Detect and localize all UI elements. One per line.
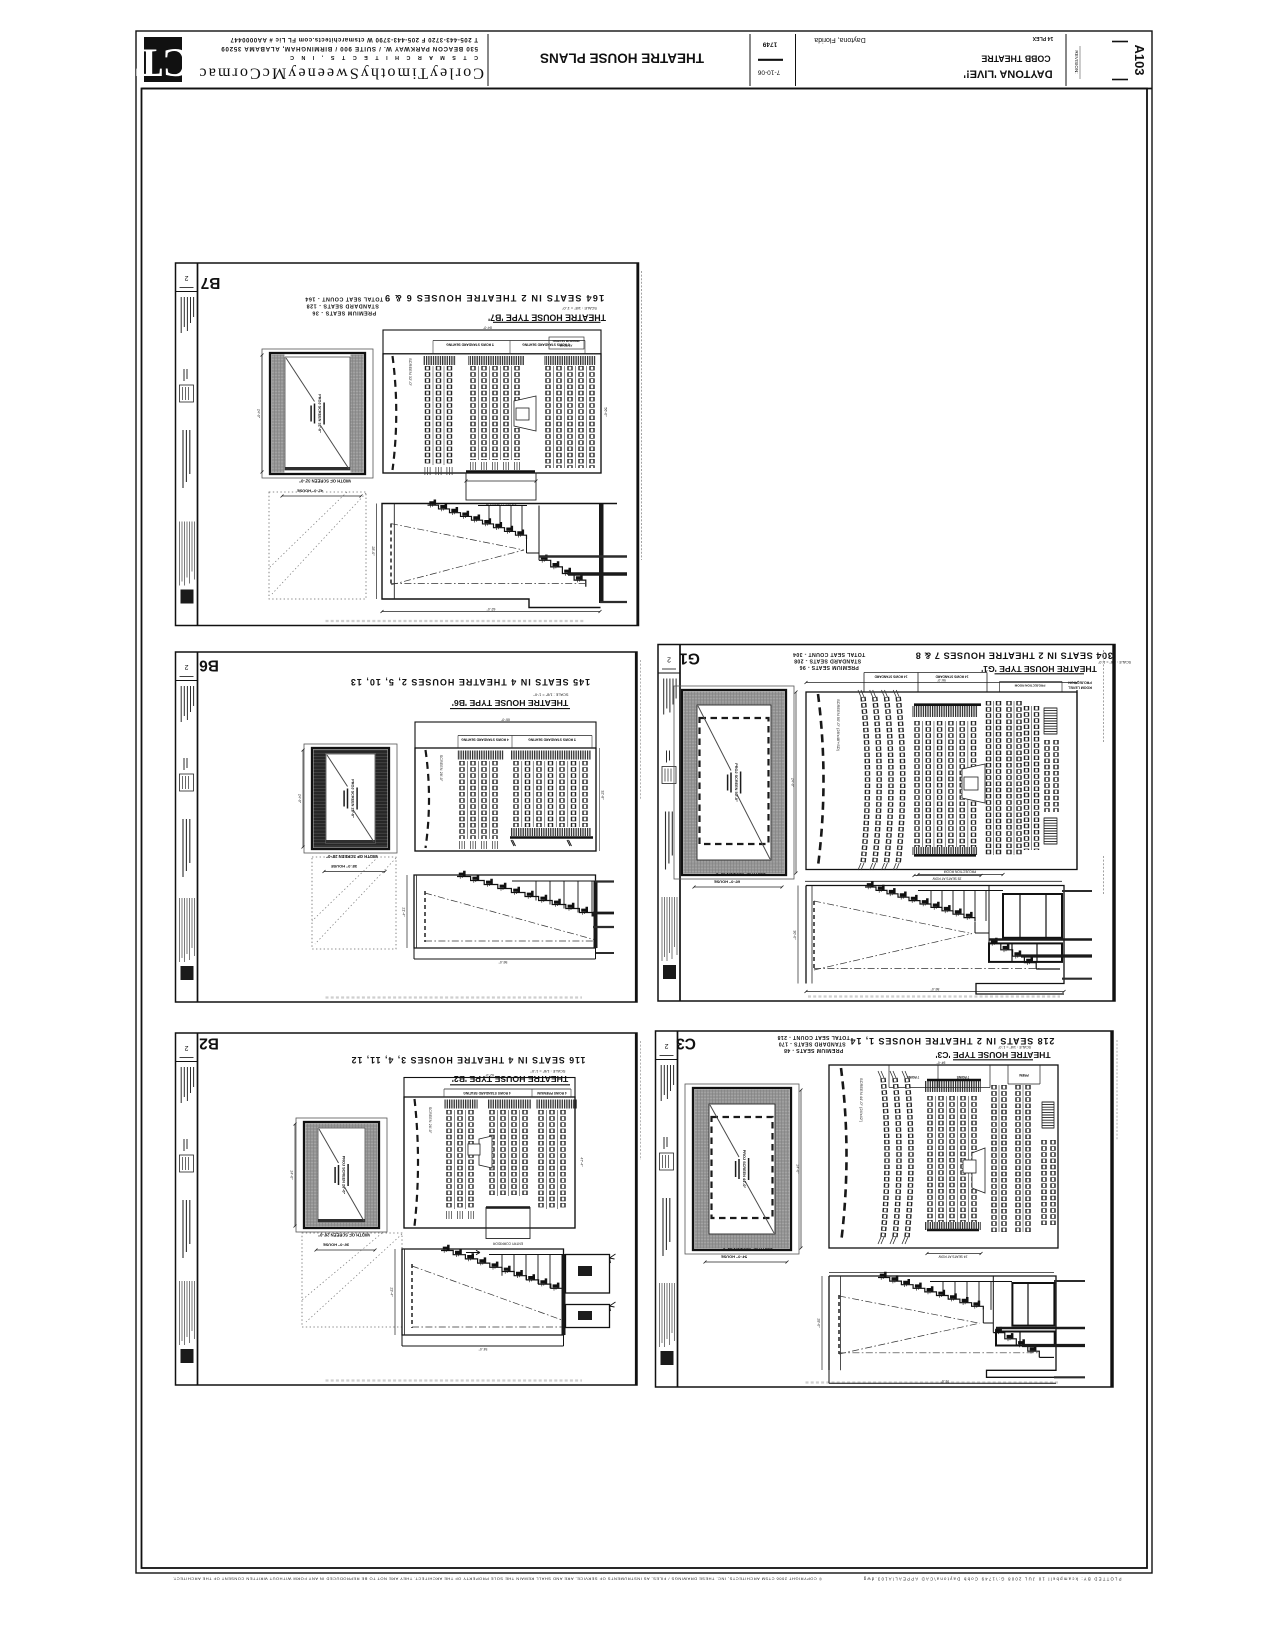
svg-text:28 SEATS AT ROW: 28 SEATS AT ROW <box>932 877 962 881</box>
svg-text:PROJ SCREEN 32'-0": PROJ SCREEN 32'-0" <box>318 394 322 433</box>
svg-text:THEATRE HOUSE TYPE 'B6': THEATRE HOUSE TYPE 'B6' <box>452 698 568 708</box>
svg-text:SCREEN 32'-0": SCREEN 32'-0" <box>408 358 413 387</box>
svg-text:STANDARD SEATS - 128: STANDARD SEATS - 128 <box>306 303 379 309</box>
svg-text:4 ROWS STANDARD SEATING: 4 ROWS STANDARD SEATING <box>461 738 509 742</box>
svg-text:4 ROWS PREMIUM: 4 ROWS PREMIUM <box>537 1091 567 1095</box>
svg-text:A103: A103 <box>1132 44 1147 75</box>
svg-text:38'-0" HOUSE: 38'-0" HOUSE <box>331 864 358 869</box>
svg-text:Daytona, Florida: Daytona, Florida <box>814 36 865 43</box>
svg-text:218 SEATS IN 2 THEATRE HOUSES: 218 SEATS IN 2 THEATRE HOUSES 1, 14 <box>850 1036 1055 1046</box>
svg-text:21'-4": 21'-4" <box>402 907 406 917</box>
svg-text:PREMIUM SEATS - 48: PREMIUM SEATS - 48 <box>784 1047 844 1053</box>
svg-text:THEATRE HOUSE PLANS: THEATRE HOUSE PLANS <box>540 50 704 65</box>
svg-text:PROJECTION ROOM: PROJECTION ROOM <box>944 870 977 874</box>
svg-text:5 ROWS STANDARD SEATING: 5 ROWS STANDARD SEATING <box>446 343 494 347</box>
svg-text:PLOTTED BY: kcampbell 1: PLOTTED BY: kcampbell 10 JUL 2008 G:\174… <box>863 1576 1122 1581</box>
svg-text:THEATRE HOUSE TYPE 'G1': THEATRE HOUSE TYPE 'G1' <box>981 664 1097 674</box>
svg-text:PREMIUM SEATS - 36: PREMIUM SEATS - 36 <box>312 310 376 316</box>
svg-text:SCALE : 1/8" = 1'-0": SCALE : 1/8" = 1'-0" <box>997 1045 1031 1049</box>
svg-text:T 205-443-3720 F 205-443-37: T 205-443-3720 F 205-443-3790 W ctsmarch… <box>230 36 478 42</box>
svg-text:84'-0": 84'-0" <box>482 326 491 330</box>
svg-text:2: 2 <box>184 274 188 281</box>
svg-text:SCREEN 44'-0" (24'x42'): SCREEN 44'-0" (24'x42') <box>859 1078 864 1123</box>
svg-text:24'-0": 24'-0" <box>796 1164 800 1174</box>
svg-text:COBB THEATRE: COBB THEATRE <box>981 54 1050 64</box>
svg-text:2: 2 <box>184 663 188 670</box>
svg-text:PROJ SCREEN 44'-0": PROJ SCREEN 44'-0" <box>742 1150 746 1189</box>
svg-text:66'-0": 66'-0" <box>500 718 509 722</box>
svg-text:PREMIUM SEATING: PREMIUM SEATING <box>552 339 580 343</box>
svg-text:THEATRE HOUSE TYPE 'C3': THEATRE HOUSE TYPE 'C3' <box>935 1050 1050 1060</box>
svg-text:THEATRE HOUSE TYPE 'B2': THEATRE HOUSE TYPE 'B2' <box>452 1074 568 1084</box>
svg-text:42'-0" HOUSE: 42'-0" HOUSE <box>297 488 324 493</box>
svg-text:5 ROWS STANDARD SEATING: 5 ROWS STANDARD SEATING <box>528 738 576 742</box>
svg-text:2: 2 <box>184 1044 188 1051</box>
svg-text:60'-0" HOUSE: 60'-0" HOUSE <box>714 879 741 884</box>
svg-text:7 ROWS: 7 ROWS <box>957 1075 970 1079</box>
svg-text:CT: CT <box>135 40 191 85</box>
svg-text:G1: G1 <box>679 649 700 666</box>
svg-text:PREM: PREM <box>1019 1073 1029 1077</box>
svg-text:530 BEACON PARKWAY W. / SUITE: 530 BEACON PARKWAY W. / SUITE 900 / BIRM… <box>221 45 478 52</box>
svg-text:76'-0": 76'-0" <box>940 1379 949 1383</box>
svg-text:54'-0": 54'-0" <box>478 1347 487 1351</box>
svg-text:23'-4": 23'-4" <box>390 1287 394 1297</box>
svg-text:2: 2 <box>664 1042 668 1049</box>
svg-text:28'-0": 28'-0" <box>371 546 375 556</box>
svg-text:7-10-06: 7-10-06 <box>757 68 780 75</box>
svg-text:WIDTH OF SCREEN 50'-0": WIDTH OF SCREEN 50'-0" <box>714 872 766 877</box>
svg-text:62'-0": 62'-0" <box>486 607 495 611</box>
svg-text:AT REAR: AT REAR <box>559 344 573 348</box>
svg-text:56'-0": 56'-0" <box>498 960 507 964</box>
svg-text:24'-0": 24'-0" <box>257 409 261 419</box>
svg-text:14 PLEX: 14 PLEX <box>1032 35 1053 41</box>
svg-text:PROJ SCREEN 26'-0": PROJ SCREEN 26'-0" <box>342 1156 346 1195</box>
svg-text:TOTAL SEAT COUNT - 218: TOTAL SEAT COUNT - 218 <box>777 1034 849 1040</box>
svg-text:WIDTH OF SCREEN 44'-0": WIDTH OF SCREEN 44'-0" <box>721 1247 773 1252</box>
svg-text:SCREEN 26'-0": SCREEN 26'-0" <box>428 1107 432 1134</box>
svg-text:62'-0": 62'-0" <box>484 1073 493 1077</box>
svg-text:24'-0": 24'-0" <box>290 1170 294 1180</box>
svg-text:THEATRE HOUSE TYPE 'B7': THEATRE HOUSE TYPE 'B7' <box>488 313 606 323</box>
svg-text:TOTAL SEAT COUNT - 164: TOTAL SEAT COUNT - 164 <box>305 296 383 302</box>
svg-text:ROOM LEVEL: ROOM LEVEL <box>1067 686 1092 690</box>
svg-text:164 SEATS IN 2 THEATRE HOUSES: 164 SEATS IN 2 THEATRE HOUSES 6 & 9 <box>384 293 604 303</box>
svg-text:86'-0": 86'-0" <box>930 987 939 991</box>
svg-text:B2: B2 <box>199 1034 219 1051</box>
svg-text:PREMIUM SEATS - 96: PREMIUM SEATS - 96 <box>799 664 859 670</box>
svg-text:SCALE : 1/8" = 1'-0": SCALE : 1/8" = 1'-0" <box>561 306 597 311</box>
svg-text:PROJECTION ROOM: PROJECTION ROOM <box>1014 684 1045 688</box>
svg-text:DAYTONA 'LIVE!': DAYTONA 'LIVE!' <box>963 68 1053 80</box>
svg-text:© COPYRIGHT 2006 CTSM ARC: © COPYRIGHT 2006 CTSM ARCHITECTS, INC. T… <box>172 1576 822 1581</box>
svg-text:24'-0": 24'-0" <box>791 778 795 788</box>
svg-text:4 ROWS STANDARD SEATING: 4 ROWS STANDARD SEATING <box>463 1091 511 1095</box>
svg-text:CorleyTimothySweeneyMcCormac: CorleyTimothySweeneyMcCormac <box>198 64 485 82</box>
svg-text:SCREEN 28'-0": SCREEN 28'-0" <box>439 755 443 782</box>
svg-text:47'-4": 47'-4" <box>580 1157 584 1167</box>
svg-text:24'-0": 24'-0" <box>298 794 302 804</box>
svg-text:SCALE : 1/8" = 1'-0": SCALE : 1/8" = 1'-0" <box>530 1069 566 1074</box>
svg-text:54'-0" HOUSE: 54'-0" HOUSE <box>721 1254 748 1259</box>
svg-text:STANDARD SEATS - 170: STANDARD SEATS - 170 <box>778 1041 845 1047</box>
svg-text:PROJ SCREEN 28'-0": PROJ SCREEN 28'-0" <box>351 779 355 818</box>
svg-text:32'-8": 32'-8" <box>601 790 605 800</box>
svg-text:SCALE : 1/8" = 1'-0": SCALE : 1/8" = 1'-0" <box>533 692 569 697</box>
svg-text:REVISION:: REVISION: <box>1074 50 1079 73</box>
svg-text:TOTAL SEAT COUNT - 304: TOTAL SEAT COUNT - 304 <box>793 651 865 657</box>
svg-text:SCREEN 50'-0" (28'x48'+SD): SCREEN 50'-0" (28'x48'+SD) <box>836 699 841 752</box>
svg-text:ENTRY CORRIDOR: ENTRY CORRIDOR <box>492 1242 523 1246</box>
svg-text:145 SEATS IN 4 THEATRE HOUSES: 145 SEATS IN 4 THEATRE HOUSES 2, 5, 10, … <box>350 677 590 687</box>
svg-text:30'-0": 30'-0" <box>793 930 797 940</box>
svg-text:28'-0": 28'-0" <box>817 1318 821 1328</box>
svg-text:304 SEATS IN 2 THEATRE HOUSES: 304 SEATS IN 2 THEATRE HOUSES 7 & 8 <box>915 651 1113 661</box>
svg-text:WIDTH OF SCREEN 32'-0": WIDTH OF SCREEN 32'-0" <box>299 478 351 483</box>
svg-text:B6: B6 <box>199 656 219 673</box>
svg-text:PROJ SCREEN 50'-0": PROJ SCREEN 50'-0" <box>734 763 738 802</box>
svg-text:56'-0": 56'-0" <box>604 407 608 417</box>
svg-text:14 ROWS STANDARD: 14 ROWS STANDARD <box>874 675 908 679</box>
svg-text:2: 2 <box>667 656 671 663</box>
svg-text:B7: B7 <box>201 274 221 291</box>
svg-text:36'-0" HOUSE: 36'-0" HOUSE <box>323 1242 350 1247</box>
svg-text:1749: 1749 <box>762 40 777 47</box>
svg-text:24 SEATS AT ROW: 24 SEATS AT ROW <box>938 1255 968 1259</box>
svg-text:96'-0": 96'-0" <box>936 678 945 682</box>
svg-text:SCALE : 1/8" = 1'-0": SCALE : 1/8" = 1'-0" <box>1097 660 1131 664</box>
svg-text:STANDARD SEATS - 208: STANDARD SEATS - 208 <box>794 658 861 664</box>
svg-text:116 SEATS IN 4 THEATRE HOUSES: 116 SEATS IN 4 THEATRE HOUSES 3, 4, 11, … <box>351 1055 586 1065</box>
svg-text:84'-0": 84'-0" <box>936 1061 945 1065</box>
svg-text:C3: C3 <box>676 1034 696 1051</box>
svg-text:C T S M A R C H I T E C T S: C T S M A R C H I T E C T S , I N C <box>287 54 478 60</box>
svg-text:WIDTH OF SCREEN 28'-0": WIDTH OF SCREEN 28'-0" <box>326 854 378 859</box>
